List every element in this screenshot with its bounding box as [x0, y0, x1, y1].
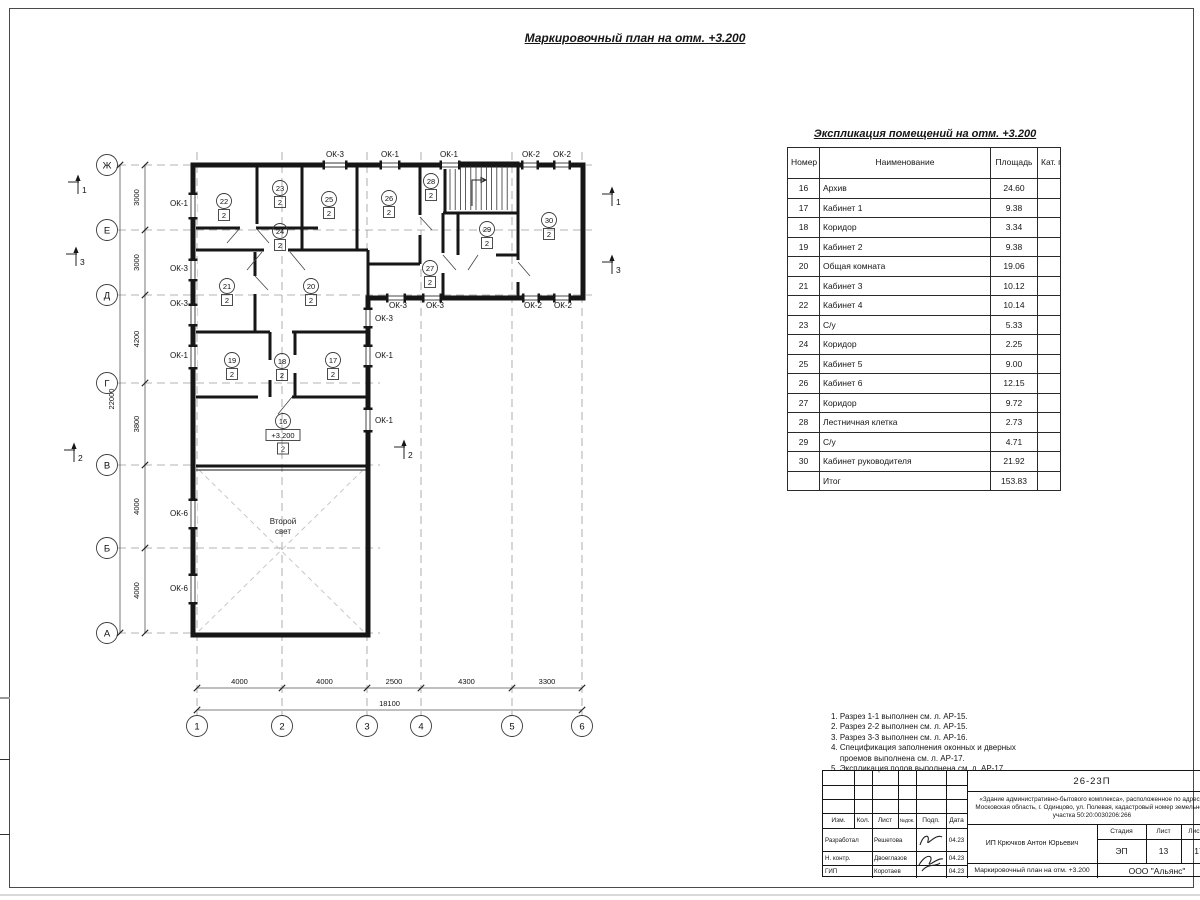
- section-number: 1: [82, 185, 87, 195]
- room-area-cell: 9.00: [991, 354, 1038, 374]
- dimension-label: 3300: [539, 677, 556, 686]
- axis-bubble-label: 6: [579, 721, 584, 732]
- window-gap: [556, 161, 569, 169]
- axis-bubble-label: 3: [364, 721, 369, 732]
- section-arrowhead: [71, 443, 76, 450]
- explication-title: Экспликация помещений на отм. +3.200: [775, 128, 1075, 140]
- dimension-label: 4200: [132, 331, 141, 348]
- room-cat-cell: [1038, 393, 1061, 413]
- window-jamb: [569, 161, 572, 170]
- room-cat-cell: [1038, 471, 1061, 491]
- window-label: ОК-3: [170, 264, 189, 273]
- dimension-total-label: 18100: [379, 699, 400, 708]
- room-name-cell: Кабинет 4: [820, 296, 991, 316]
- stamp-col-ndoc: №док.: [898, 813, 916, 828]
- room-name-cell: Общая комната: [820, 257, 991, 277]
- window-gap: [364, 310, 372, 326]
- room-number-cell: 24: [788, 335, 820, 355]
- room-name-cell: Кабинет 3: [820, 276, 991, 296]
- axis-bubble-label: 4: [418, 721, 423, 732]
- window-jamb: [323, 161, 326, 170]
- axis-bubble-label: Ж: [103, 160, 112, 171]
- window-label: ОК-1: [381, 150, 400, 159]
- axis-bubble-label: Е: [104, 225, 110, 236]
- stamp-sheet-value: 13: [1146, 839, 1181, 863]
- stamp-description: «Здание административно-бытового комплек…: [970, 792, 1200, 823]
- room-number-cell: 30: [788, 452, 820, 472]
- room-category: 2: [327, 209, 331, 218]
- axis-bubble-label: 5: [509, 721, 514, 732]
- section-arrowhead: [75, 175, 80, 182]
- room-number: 18: [278, 357, 286, 366]
- dimension-label: 4000: [132, 582, 141, 599]
- window-gap: [524, 161, 537, 169]
- window-label: ОК-3: [426, 301, 445, 310]
- section-number: 3: [616, 265, 621, 275]
- table-header-row: Номер помещ. Наименование Площадь Кат. п…: [788, 148, 1061, 179]
- room-area-cell: 3.34: [991, 218, 1038, 238]
- room-number: 21: [223, 282, 231, 291]
- window-label: ОК-2: [522, 150, 541, 159]
- dimension-total-label: 22000: [107, 389, 116, 410]
- window-gap: [364, 347, 372, 365]
- room-cat-cell: [1038, 315, 1061, 335]
- window-label: ОК-6: [170, 509, 189, 518]
- table-row: 25Кабинет 59.00: [788, 354, 1061, 374]
- room-number: 25: [325, 195, 333, 204]
- room-name-cell: Лестничная клетка: [820, 413, 991, 433]
- room-name-cell: Кабинет 5: [820, 354, 991, 374]
- room-category: 2: [222, 211, 226, 220]
- room-number-cell: [788, 471, 820, 491]
- window-gap: [189, 347, 197, 367]
- window-label: ОК-3: [170, 299, 189, 308]
- room-number: 17: [329, 356, 337, 365]
- table-row: 23С/у5.33: [788, 315, 1061, 335]
- window-label: ОК-1: [375, 351, 394, 360]
- table-row: 20Общая комната19.06: [788, 257, 1061, 277]
- room-category: 2: [281, 444, 285, 453]
- room-number: 23: [276, 184, 284, 193]
- room-category: 2: [278, 241, 282, 250]
- window-label: ОК-1: [170, 351, 189, 360]
- window-jamb: [189, 367, 198, 370]
- window-label: ОК-3: [326, 150, 345, 159]
- room-number-cell: 29: [788, 432, 820, 452]
- room-area-cell: 4.71: [991, 432, 1038, 452]
- drawing-sheet: Маркировочный план на отм. +3.200 300030…: [0, 0, 1200, 900]
- window-gap: [382, 161, 398, 169]
- axis-bubble-label: Г: [104, 378, 109, 389]
- explication-table: Номер помещ. Наименование Площадь Кат. п…: [787, 147, 1061, 491]
- window-gap: [442, 161, 458, 169]
- room-name-cell: Кабинет руководителя: [820, 452, 991, 472]
- room-cat-cell: [1038, 452, 1061, 472]
- void-label: Второйсвет: [270, 517, 296, 536]
- window-jamb: [458, 161, 461, 170]
- table-row: 29С/у4.71: [788, 432, 1061, 452]
- room-area-cell: 24.60: [991, 179, 1038, 199]
- section-marker: 1: [602, 187, 621, 208]
- window-jamb: [189, 324, 198, 327]
- room-category: 2: [309, 296, 313, 305]
- window-jamb: [398, 161, 401, 170]
- stamp-col-izm: Изм.: [823, 813, 854, 828]
- window-jamb: [364, 345, 373, 348]
- axis-bubble-label: Б: [104, 543, 110, 554]
- room-number: 28: [427, 177, 435, 186]
- room-category: 2: [428, 278, 432, 287]
- window-label: ОК-1: [440, 150, 459, 159]
- window-jamb: [189, 279, 198, 282]
- dimension-label: 3000: [132, 189, 141, 206]
- room-name-cell: Кабинет 2: [820, 237, 991, 257]
- section-marker: 2: [64, 443, 83, 464]
- room-name-cell: С/у: [820, 432, 991, 452]
- room-name-cell: Архив: [820, 179, 991, 199]
- axis-bubble-label: А: [104, 628, 111, 639]
- window-jamb: [521, 161, 524, 170]
- window-gap: [325, 161, 345, 169]
- dimension-label: 3800: [132, 416, 141, 433]
- window-label: ОК-6: [170, 584, 189, 593]
- room-cat-cell: [1038, 335, 1061, 355]
- room-area-cell: 5.33: [991, 315, 1038, 335]
- section-arrowhead: [609, 255, 614, 262]
- stamp-stage-value: ЭП: [1097, 839, 1146, 863]
- room-name-cell: Коридор: [820, 218, 991, 238]
- section-arrowhead: [401, 440, 406, 447]
- table-row: 22Кабинет 410.14: [788, 296, 1061, 316]
- stamp-name: Двоеглазов: [874, 851, 915, 865]
- window-label: ОК-2: [524, 301, 543, 310]
- room-number-cell: 27: [788, 393, 820, 413]
- stamp-role: Н. контр.: [825, 851, 871, 865]
- window-jamb: [364, 430, 373, 433]
- table-row: 28Лестничная клетка2.73: [788, 413, 1061, 433]
- room-cat-cell: [1038, 257, 1061, 277]
- room-number-cell: 26: [788, 374, 820, 394]
- section-number: 2: [78, 453, 83, 463]
- room-area-cell: 2.73: [991, 413, 1038, 433]
- stamp-stage-label: Стадия: [1097, 824, 1146, 839]
- room-number: 26: [385, 194, 393, 203]
- room-category: 2: [278, 198, 282, 207]
- room-number-cell: 17: [788, 198, 820, 218]
- room-area-cell: 10.12: [991, 276, 1038, 296]
- window-label: ОК-2: [554, 301, 573, 310]
- notes-list: 1. Разрез 1-1 выполнен см. л. АР-15.2. Р…: [831, 712, 1016, 774]
- window-label: ОК-2: [553, 150, 572, 159]
- window-jamb: [364, 326, 373, 329]
- window-label: ОК-1: [375, 416, 394, 425]
- void-cross: [199, 470, 363, 631]
- col-header-area: Площадь: [991, 148, 1038, 179]
- window-jamb: [189, 499, 198, 502]
- signatures: [916, 829, 946, 877]
- window-jamb: [345, 161, 348, 170]
- window-jamb: [189, 217, 198, 220]
- room-number: 16: [279, 417, 287, 426]
- room-area-cell: 9.38: [991, 198, 1038, 218]
- window-jamb: [380, 161, 383, 170]
- section-arrowhead: [73, 247, 78, 254]
- table-row: 17Кабинет 19.38: [788, 198, 1061, 218]
- room-number: 29: [483, 225, 491, 234]
- walls: [193, 163, 583, 635]
- room-number-cell: 18: [788, 218, 820, 238]
- window-gap: [189, 306, 197, 324]
- stamp-col-list: Лист: [872, 813, 898, 828]
- room-number-cell: 22: [788, 296, 820, 316]
- room-category: 2: [485, 239, 489, 248]
- stamp-name: Коротаев: [874, 865, 915, 878]
- room-name-cell: Итог: [820, 471, 991, 491]
- room-cat-cell: [1038, 374, 1061, 394]
- room-category: 2: [547, 230, 551, 239]
- room-number-cell: 28: [788, 413, 820, 433]
- room-category: 2: [387, 208, 391, 217]
- room-area-cell: 2.25: [991, 335, 1038, 355]
- stamp-sheets-value: 17: [1181, 839, 1200, 863]
- window-jamb: [364, 408, 373, 411]
- window-jamb: [422, 294, 425, 303]
- window-jamb: [553, 161, 556, 170]
- axis-grid: [118, 152, 592, 715]
- room-area-cell: 19.06: [991, 257, 1038, 277]
- stamp-doc-title: Маркировочный план на отм. +3.200: [967, 863, 1097, 878]
- section-number: 3: [80, 257, 85, 267]
- note-line: 1. Разрез 1-1 выполнен см. л. АР-15.: [831, 712, 1016, 722]
- dimension-label: 2500: [386, 677, 403, 686]
- window-gap: [189, 501, 197, 527]
- room-number-cell: 20: [788, 257, 820, 277]
- table-row: Итог153.83: [788, 471, 1061, 491]
- room-cat-cell: [1038, 218, 1061, 238]
- room-number: 22: [220, 197, 228, 206]
- table-row: 18Коридор3.34: [788, 218, 1061, 238]
- room-name-cell: Кабинет 6: [820, 374, 991, 394]
- window-jamb: [189, 574, 198, 577]
- room-number: 27: [426, 264, 434, 273]
- note-line: 4. Спецификация заполнения оконных и две…: [831, 743, 1016, 764]
- axis-bubble-label: 1: [194, 721, 199, 732]
- window-jamb: [189, 602, 198, 605]
- window-gap: [189, 576, 197, 602]
- room-name-cell: Кабинет 1: [820, 198, 991, 218]
- dimension-label: 4000: [316, 677, 333, 686]
- section-marker: 2: [394, 440, 413, 461]
- stamp-client: ИП Крючков Антон Юрьевич: [967, 824, 1097, 863]
- stamp-sheets-label: Листов: [1181, 824, 1200, 839]
- room-cat-cell: [1038, 413, 1061, 433]
- col-header-cat: Кат. пом.: [1038, 148, 1061, 179]
- table-row: 19Кабинет 29.38: [788, 237, 1061, 257]
- room-name-cell: С/у: [820, 315, 991, 335]
- stamp-date: 04.23: [946, 830, 967, 850]
- stamp-org: ООО "Альянс": [1097, 863, 1200, 878]
- staircase: [450, 166, 507, 210]
- window-jamb: [189, 527, 198, 530]
- table-row: 30Кабинет руководителя21.92: [788, 452, 1061, 472]
- room-cat-cell: [1038, 354, 1061, 374]
- window-jamb: [189, 304, 198, 307]
- room-number-cell: 23: [788, 315, 820, 335]
- table-row: 26Кабинет 612.15: [788, 374, 1061, 394]
- stamp-doc-code: 26-23П: [967, 772, 1200, 790]
- section-marker: 1: [68, 175, 87, 196]
- window-label: ОК-3: [389, 301, 408, 310]
- window-jamb: [364, 365, 373, 368]
- elevation-label: +3.200: [271, 431, 294, 440]
- room-category: 2: [280, 371, 284, 380]
- title-block: Изм. Кол. Лист №док. Подп. Дата Разработ…: [822, 770, 1200, 877]
- room-number-cell: 19: [788, 237, 820, 257]
- room-area-cell: 10.14: [991, 296, 1038, 316]
- window-gap: [364, 410, 372, 430]
- room-name-cell: Коридор: [820, 393, 991, 413]
- col-header-num: Номер помещ.: [788, 148, 820, 179]
- room-cat-cell: [1038, 179, 1061, 199]
- room-area-cell: 153.83: [991, 471, 1038, 491]
- section-marker: 3: [602, 255, 621, 276]
- stamp-date: 04.23: [946, 865, 967, 878]
- stamp-date: 04.23: [946, 851, 967, 865]
- window-gap: [189, 195, 197, 217]
- dimension-label: 4300: [458, 677, 475, 686]
- axis-bubble-label: В: [104, 460, 110, 471]
- room-category: 2: [230, 370, 234, 379]
- dimension-label: 4000: [132, 498, 141, 515]
- table-row: 21Кабинет 310.12: [788, 276, 1061, 296]
- room-cat-cell: [1038, 237, 1061, 257]
- section-markers: 132132: [64, 175, 621, 464]
- table-row: 24Коридор2.25: [788, 335, 1061, 355]
- window-jamb: [537, 161, 540, 170]
- table-row: 16Архив24.60: [788, 179, 1061, 199]
- dimension-lines: 3000300042003800400040002200040004000250…: [107, 162, 585, 713]
- room-number: 24: [276, 227, 284, 236]
- section-number: 2: [408, 450, 413, 460]
- window-jamb: [189, 345, 198, 348]
- room-cat-cell: [1038, 276, 1061, 296]
- room-name-cell: Коридор: [820, 335, 991, 355]
- stamp-name: Решетова: [874, 830, 915, 850]
- room-category: 2: [429, 191, 433, 200]
- dimension-label: 4000: [231, 677, 248, 686]
- window-openings: [189, 161, 572, 605]
- axis-bubble-label: 2: [279, 721, 284, 732]
- section-number: 1: [616, 197, 621, 207]
- window-label: ОК-3: [375, 314, 394, 323]
- room-area-cell: 9.38: [991, 237, 1038, 257]
- window-gap: [189, 261, 197, 279]
- room-category: 2: [225, 296, 229, 305]
- col-header-name: Наименование: [820, 148, 991, 179]
- axis-bubble-label: Д: [104, 290, 111, 301]
- room-cat-cell: [1038, 432, 1061, 452]
- window-jamb: [189, 259, 198, 262]
- room-number: 20: [307, 282, 315, 291]
- room-number-cell: 16: [788, 179, 820, 199]
- window-jamb: [189, 193, 198, 196]
- room-area-cell: 9.72: [991, 393, 1038, 413]
- stamp-role: Разработал: [825, 830, 871, 850]
- stamp-col-kol: Кол.: [854, 813, 872, 828]
- note-line: 3. Разрез 3-3 выполнен см. л. АР-16.: [831, 733, 1016, 743]
- room-cat-cell: [1038, 296, 1061, 316]
- window-jamb: [364, 308, 373, 311]
- room-number-cell: 21: [788, 276, 820, 296]
- stamp-col-data: Дата: [946, 813, 967, 828]
- stamp-role: ГИП: [825, 865, 871, 878]
- note-line: 2. Разрез 2-2 выполнен см. л. АР-15.: [831, 722, 1016, 732]
- room-number: 30: [545, 216, 553, 225]
- stamp-sheet-label: Лист: [1146, 824, 1181, 839]
- room-area-cell: 12.15: [991, 374, 1038, 394]
- stamp-col-podp: Подп.: [916, 813, 946, 828]
- section-arrowhead: [609, 187, 614, 194]
- room-number: 19: [228, 356, 236, 365]
- room-cat-cell: [1038, 198, 1061, 218]
- dimension-label: 3000: [132, 254, 141, 271]
- window-jamb: [440, 161, 443, 170]
- table-row: 27Коридор9.72: [788, 393, 1061, 413]
- section-marker: 3: [66, 247, 85, 268]
- room-category: 2: [331, 370, 335, 379]
- room-number-cell: 25: [788, 354, 820, 374]
- room-area-cell: 21.92: [991, 452, 1038, 472]
- window-label: ОК-1: [170, 199, 189, 208]
